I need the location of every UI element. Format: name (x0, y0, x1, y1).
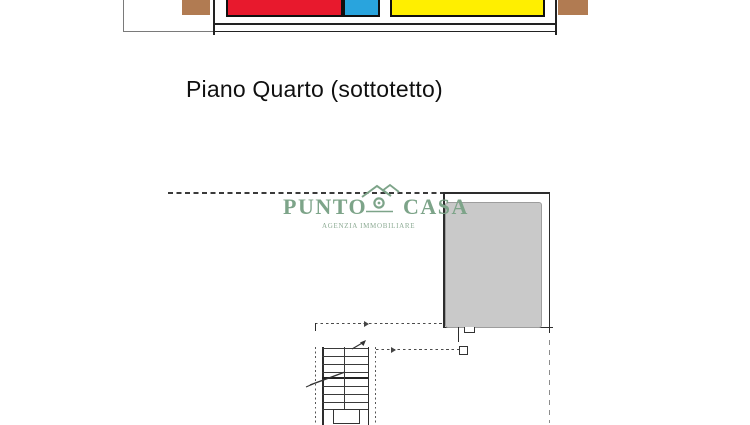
elevation-left-floor-line (123, 31, 214, 32)
elevation-red-block (226, 0, 343, 17)
elevation-left-wall-line (123, 0, 124, 32)
corridor-tick (315, 323, 316, 331)
logo-word-casa: CASA (403, 196, 469, 218)
grey-room-area (445, 202, 542, 328)
door-jamb-line (458, 327, 459, 342)
elevation-box-bottom-line (213, 23, 557, 25)
corridor-arrow-lower (391, 347, 396, 353)
house-icon (356, 183, 402, 220)
corridor-dotted-line-upper (315, 323, 442, 324)
stair-annotations (300, 335, 390, 395)
stair-well-rect (333, 409, 360, 424)
logo-subtitle: AGENZIA IMMOBILIARE (322, 222, 415, 230)
corridor-arrow-upper (364, 321, 369, 327)
elevation-brown-block-right (558, 0, 588, 15)
wall-opening-notch (464, 327, 475, 334)
elevation-brown-block-left (182, 0, 210, 15)
corridor-end-marker (459, 346, 468, 355)
plan-right-wall-line (549, 192, 551, 333)
stair-tread (322, 402, 368, 403)
floorplan-page: Piano Quarto (sottotetto) PUNTO CASA AGE… (0, 0, 750, 425)
floor-title: Piano Quarto (sottotetto) (186, 76, 443, 103)
elevation-floor-line (213, 31, 557, 33)
elevation-blue-block (343, 0, 380, 17)
logo-word-punto: PUNTO (283, 196, 367, 218)
elevation-yellow-block (390, 0, 545, 17)
plan-right-dashed-line (549, 340, 550, 423)
